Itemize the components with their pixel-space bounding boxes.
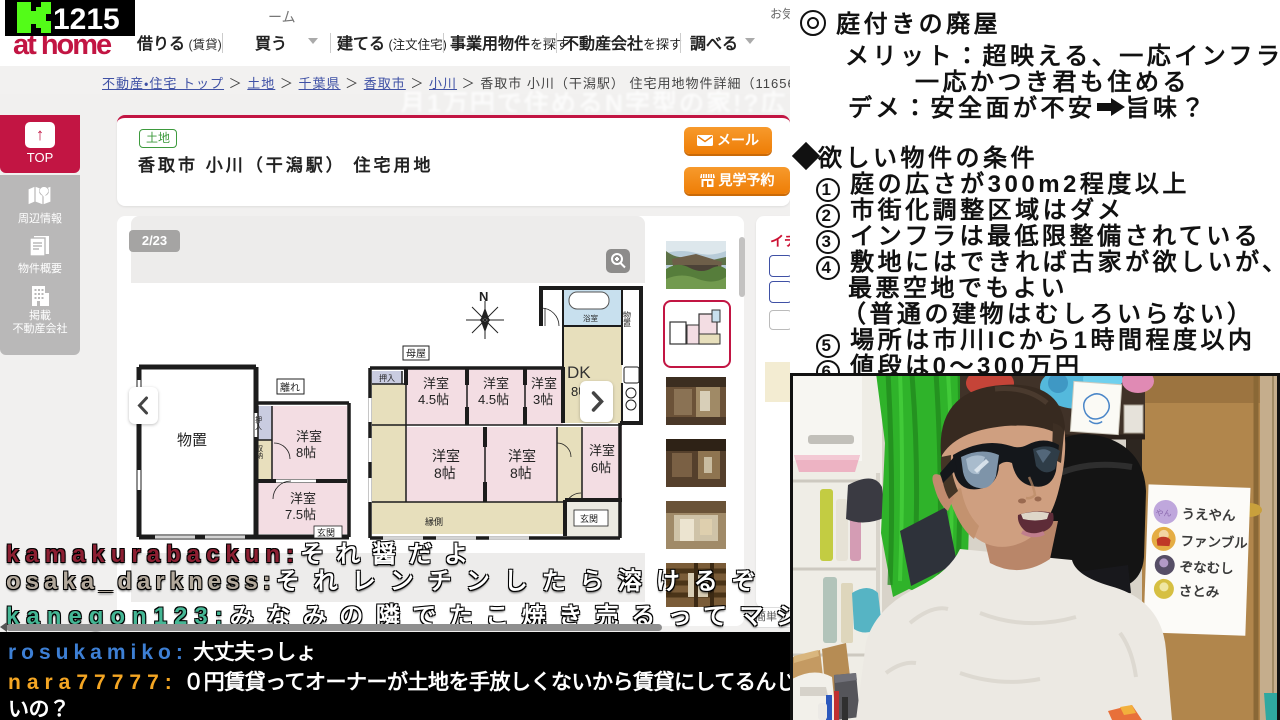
svg-text:4.5帖: 4.5帖 bbox=[418, 392, 449, 407]
svg-text:さとみ: さとみ bbox=[1179, 583, 1220, 599]
svg-text:洋室: 洋室 bbox=[483, 376, 509, 391]
svg-text:7.5帖: 7.5帖 bbox=[285, 507, 316, 522]
svg-text:物置: 物置 bbox=[177, 432, 207, 449]
svg-text:物置: 物置 bbox=[623, 310, 632, 328]
svg-text:離れ: 離れ bbox=[280, 381, 300, 394]
svg-text:8帖: 8帖 bbox=[434, 465, 456, 481]
svg-text:6帖: 6帖 bbox=[591, 460, 611, 475]
svg-text:洋室: 洋室 bbox=[589, 443, 615, 458]
svg-text:N: N bbox=[479, 289, 488, 304]
svg-text:母屋: 母屋 bbox=[406, 348, 426, 360]
svg-text:やん: やん bbox=[1155, 509, 1171, 519]
svg-text:うえやん: うえやん bbox=[1181, 507, 1236, 524]
svg-text:3帖: 3帖 bbox=[533, 392, 553, 407]
svg-text:8帖: 8帖 bbox=[510, 465, 532, 481]
svg-text:玄関: 玄関 bbox=[580, 513, 598, 524]
svg-text:ぞなむし: ぞなむし bbox=[1179, 559, 1233, 576]
svg-text:洋室: 洋室 bbox=[423, 376, 449, 391]
svg-text:洋室: 洋室 bbox=[531, 376, 557, 391]
svg-text:DK: DK bbox=[567, 363, 591, 382]
svg-text:洋室: 洋室 bbox=[508, 448, 536, 464]
svg-text:縁側: 縁側 bbox=[425, 516, 443, 527]
svg-text:浴室: 浴室 bbox=[583, 313, 598, 323]
svg-text:押入: 押入 bbox=[255, 415, 263, 431]
svg-text:洋室: 洋室 bbox=[290, 491, 316, 506]
svg-text:8帖: 8帖 bbox=[296, 445, 316, 460]
svg-text:押入: 押入 bbox=[379, 373, 395, 383]
svg-text:収納: 収納 bbox=[256, 444, 264, 460]
svg-text:1215: 1215 bbox=[53, 3, 120, 36]
svg-text:ファンブル: ファンブル bbox=[1180, 532, 1248, 550]
svg-text:洋室: 洋室 bbox=[296, 429, 322, 444]
svg-text:4.5帖: 4.5帖 bbox=[478, 392, 509, 407]
svg-text:洋室: 洋室 bbox=[432, 448, 460, 464]
